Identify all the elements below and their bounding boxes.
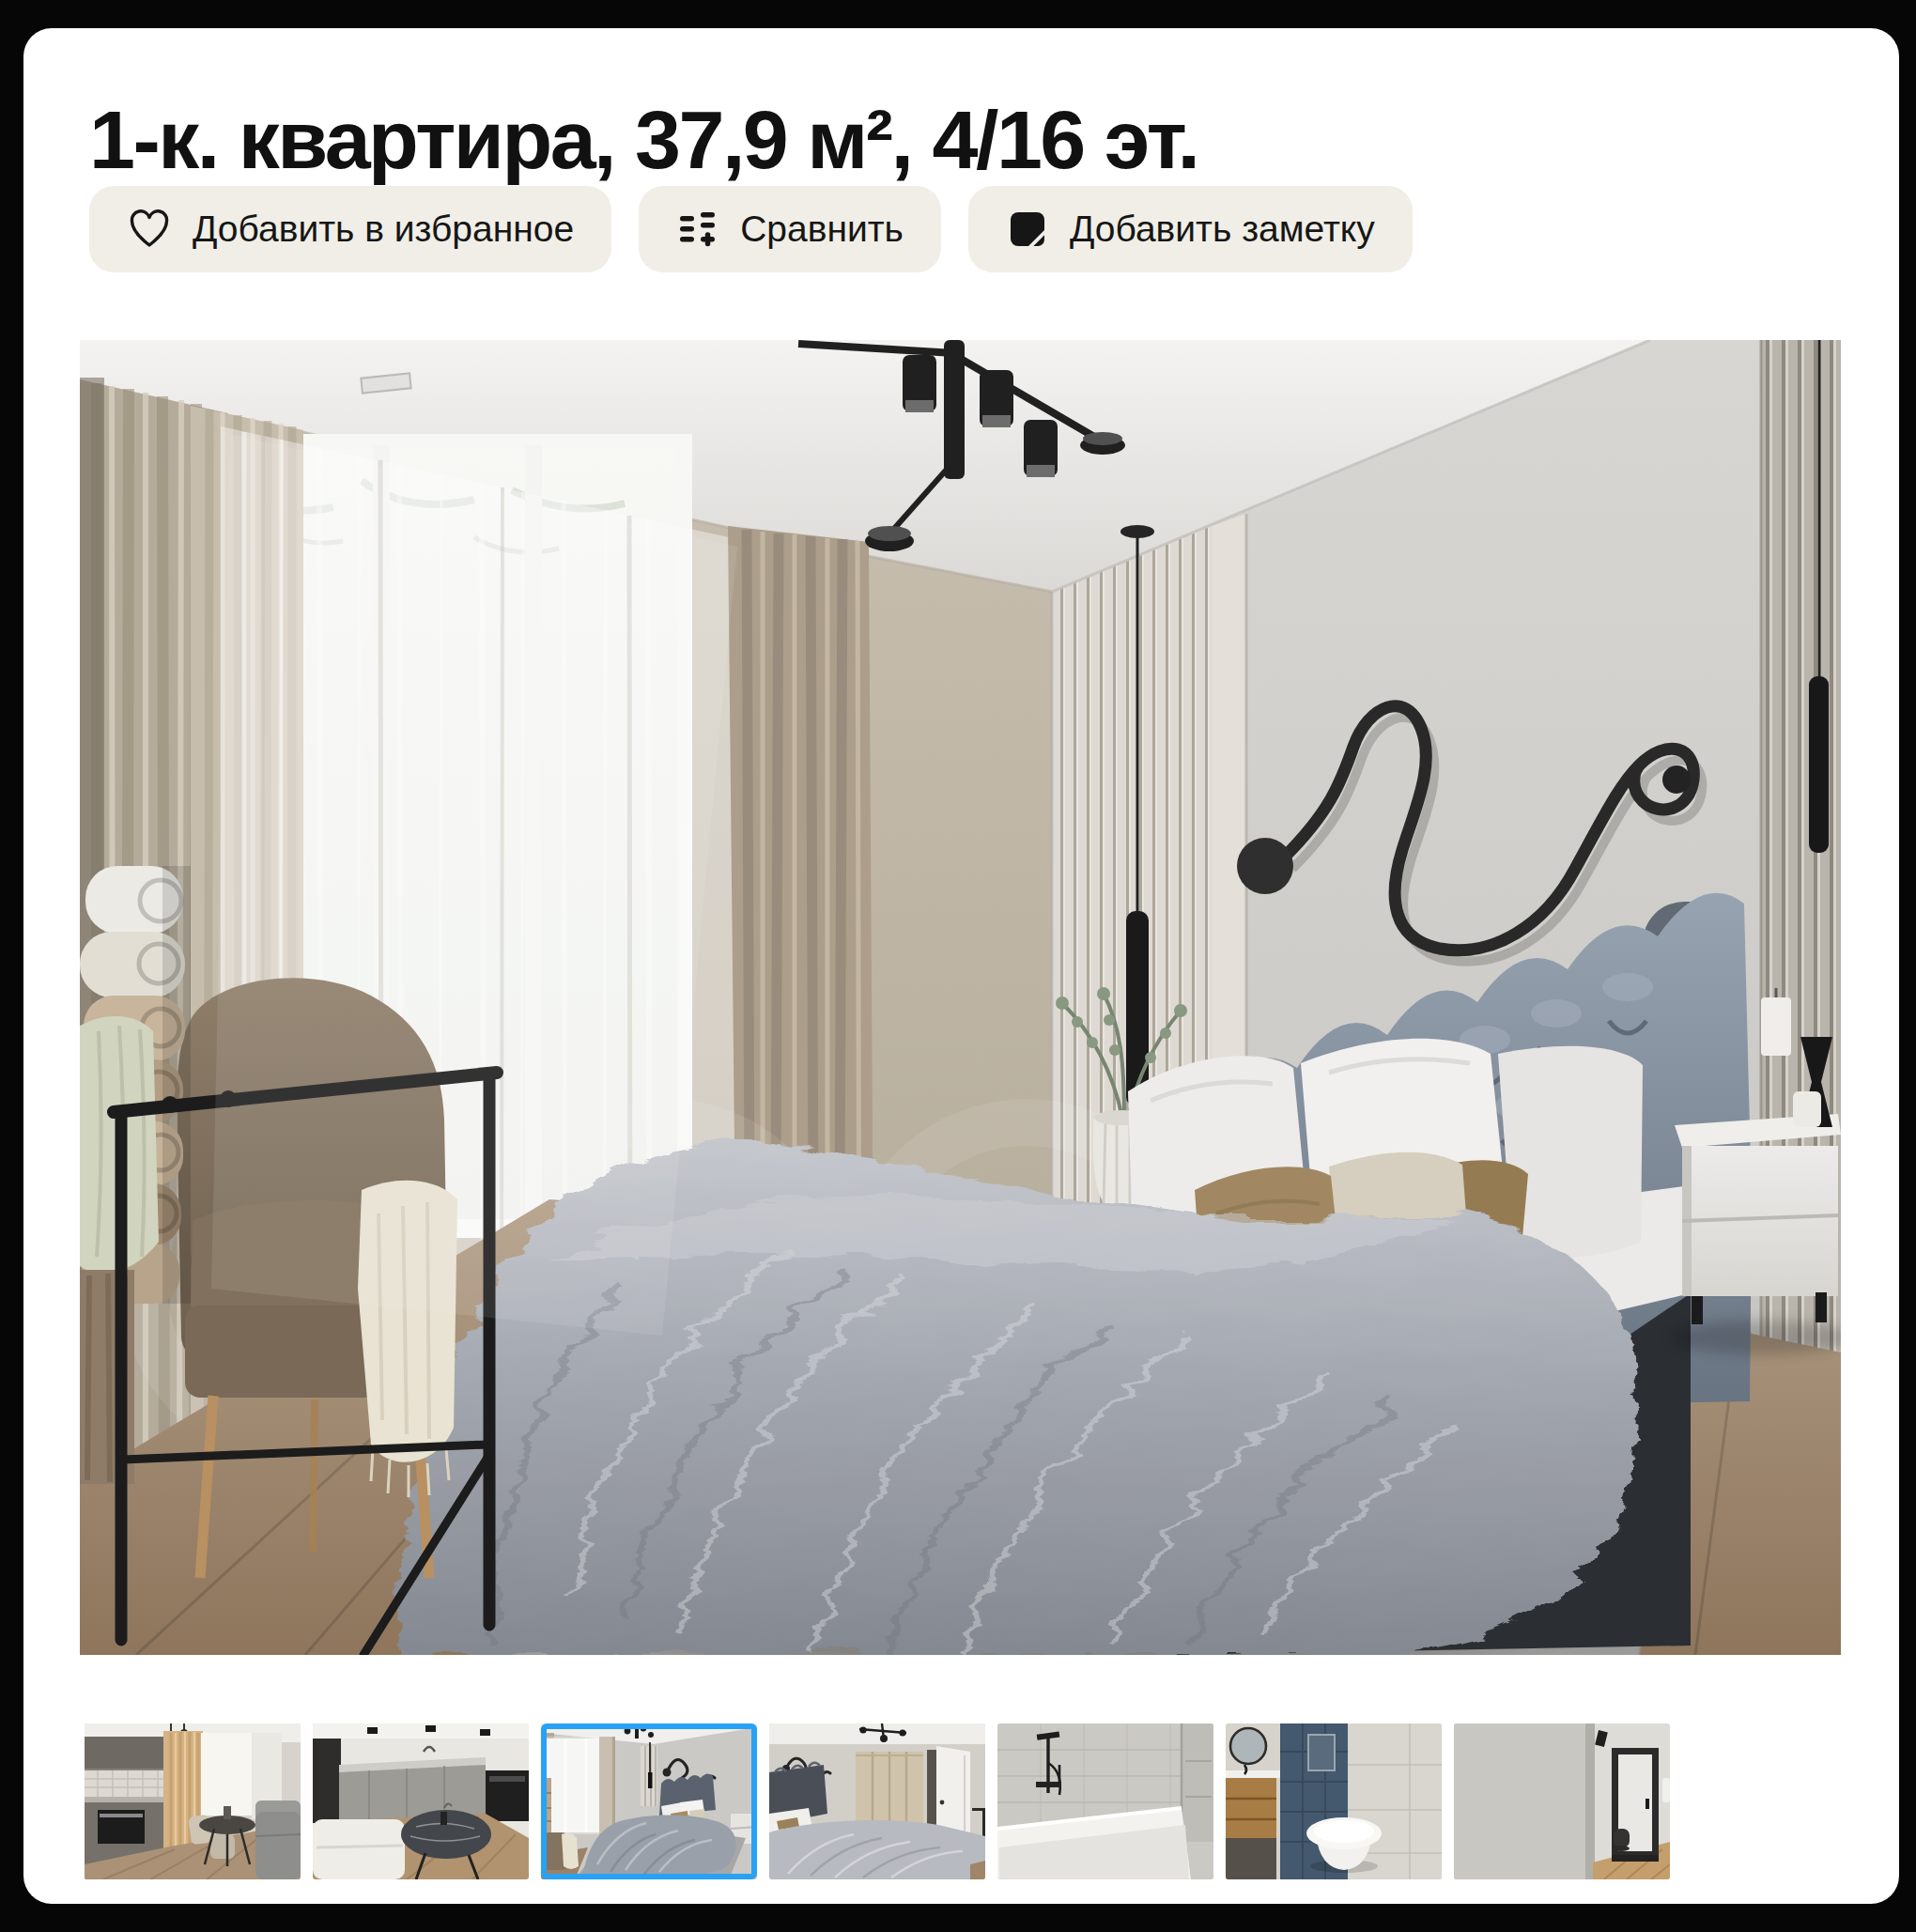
thumbnail-kitchen[interactable] <box>313 1723 529 1879</box>
add-to-favorites-button[interactable]: Добавить в избранное <box>89 186 611 272</box>
thumbnail-bedroom-selected[interactable] <box>541 1723 757 1879</box>
heart-icon <box>127 207 172 252</box>
note-icon <box>1006 208 1049 251</box>
thumbnail-bedroom-wardrobe[interactable] <box>769 1723 985 1879</box>
add-note-label: Добавить заметку <box>1070 209 1375 250</box>
listing-card: 1-к. квартира, 37,9 м², 4/16 эт. Добавит… <box>23 28 1899 1904</box>
thumbnail-strip <box>85 1723 1670 1879</box>
thumbnail-bathroom-wc[interactable] <box>1226 1723 1442 1879</box>
thumbnail-bathroom-tub[interactable] <box>997 1723 1213 1879</box>
compare-icon <box>676 208 719 251</box>
page-title: 1-к. квартира, 37,9 м², 4/16 эт. <box>89 97 1198 183</box>
thumbnail-kitchen-dining[interactable] <box>85 1723 301 1879</box>
screenshot-root: { "listing": { "title": "1-к. квартира, … <box>0 0 1916 1932</box>
compare-button[interactable]: Сравнить <box>639 186 941 272</box>
add-to-favorites-label: Добавить в избранное <box>193 209 574 250</box>
add-note-button[interactable]: Добавить заметку <box>968 186 1413 272</box>
bedroom-photo-illustration <box>80 340 1841 1655</box>
thumbnail-hallway[interactable] <box>1454 1723 1670 1879</box>
action-bar: Добавить в избранное Сравнить <box>89 186 1413 272</box>
compare-label: Сравнить <box>740 209 904 250</box>
main-photo[interactable] <box>80 340 1841 1655</box>
